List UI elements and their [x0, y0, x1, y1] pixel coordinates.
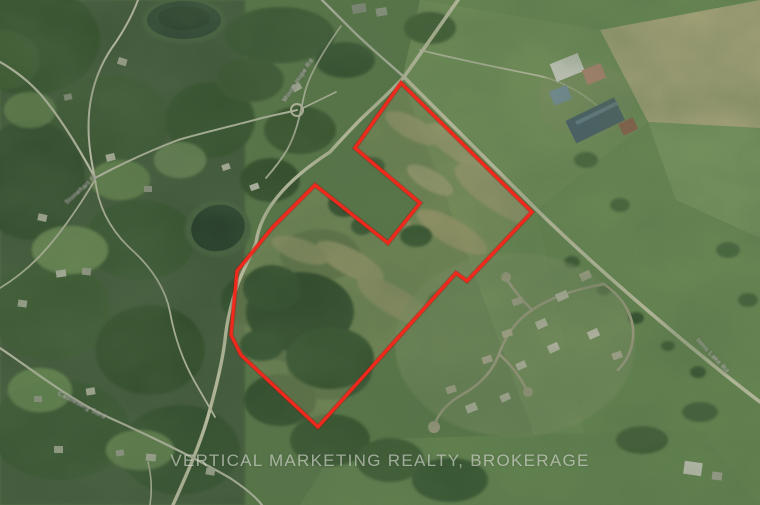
satellite-map — [0, 0, 760, 505]
grain-overlay — [0, 0, 760, 505]
aerial-listing-photo[interactable]: Mount Hope Rd Innis Lake Rd Castlederg S… — [0, 0, 760, 505]
watermark-text: VERTICAL MARKETING REALTY, BROKERAGE — [170, 451, 589, 471]
